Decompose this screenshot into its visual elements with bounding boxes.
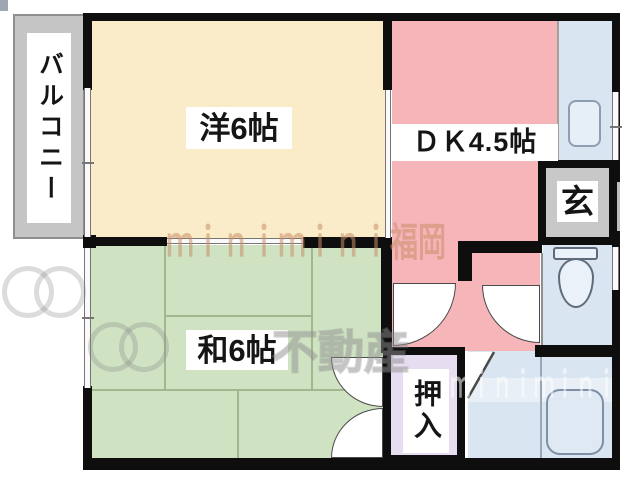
genkan-label: 玄 [557,181,598,222]
wall-toilet-bath [535,345,612,357]
fusuma-western-japanese [167,238,303,244]
toilet-wall-line [541,253,543,349]
wall-japanese-hall [381,237,392,353]
tatami-line [164,245,166,391]
watermark-logo-ring [119,322,169,372]
balcony-label: バルコニー [27,33,71,223]
tatami-line [237,391,239,458]
dk-label-band: ＤＫ4.5帖 [392,124,558,161]
window-tick [82,317,94,319]
watermark-logo-ring [34,266,86,318]
washroom-bath-divider [540,357,542,458]
tatami-line [311,245,313,391]
closet-label: 押入 [403,369,449,453]
washroom-door-leaf [460,348,502,404]
wall-western-japanese-left [83,237,167,246]
floor-plan: バルコニー 玄 押入 [0,0,633,480]
kitchen-sink-fixture [568,100,601,147]
window-tick [82,162,94,164]
wall-bottom [83,458,620,470]
window-tick [610,126,622,128]
scan-artifact [0,0,8,11]
toilet-window [612,247,619,290]
tatami-line [164,315,313,317]
balcony: バルコニー [13,14,85,239]
closet-box: 押入 [383,347,465,462]
wall-western-dk-top [383,13,392,90]
bathtub [546,389,604,455]
wall-top [83,13,620,21]
wall-pocket-stub [458,241,472,281]
wall-western-japanese-right [303,237,392,248]
genkan-box: 玄 [538,160,617,245]
wall-left-bottom [83,386,92,466]
japanese-room-label: 和6帖 [186,330,288,370]
wall-left-top [83,13,92,90]
sliding-door-western-dk [385,90,391,238]
western-room-label: 洋6帖 [186,107,292,149]
